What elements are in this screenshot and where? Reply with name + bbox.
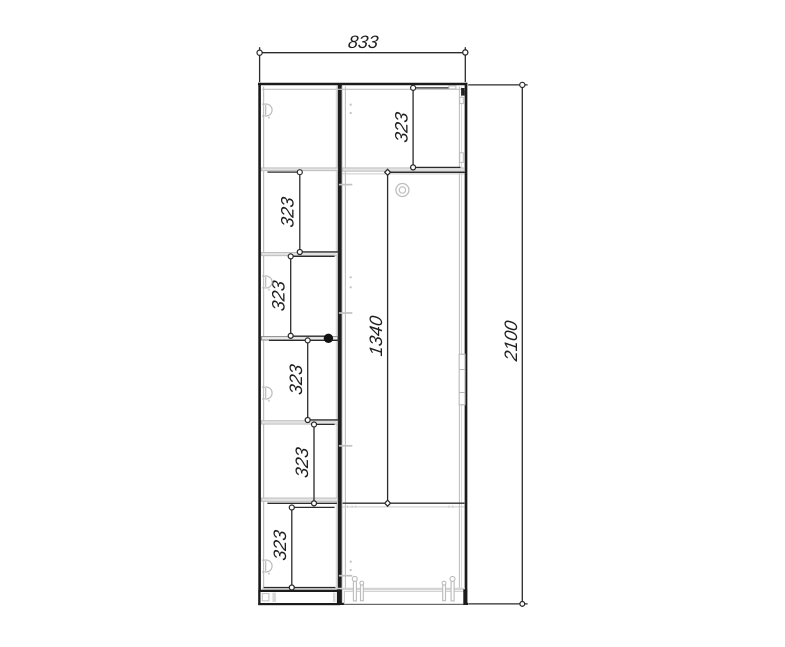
svg-text:323: 323 xyxy=(391,111,411,144)
svg-text:323: 323 xyxy=(270,529,290,562)
svg-text:323: 323 xyxy=(278,196,298,229)
svg-text:833: 833 xyxy=(347,32,380,52)
svg-text:1340: 1340 xyxy=(366,314,386,357)
svg-text:323: 323 xyxy=(286,363,306,396)
svg-text:323: 323 xyxy=(292,446,312,479)
svg-text:2100: 2100 xyxy=(501,319,521,363)
